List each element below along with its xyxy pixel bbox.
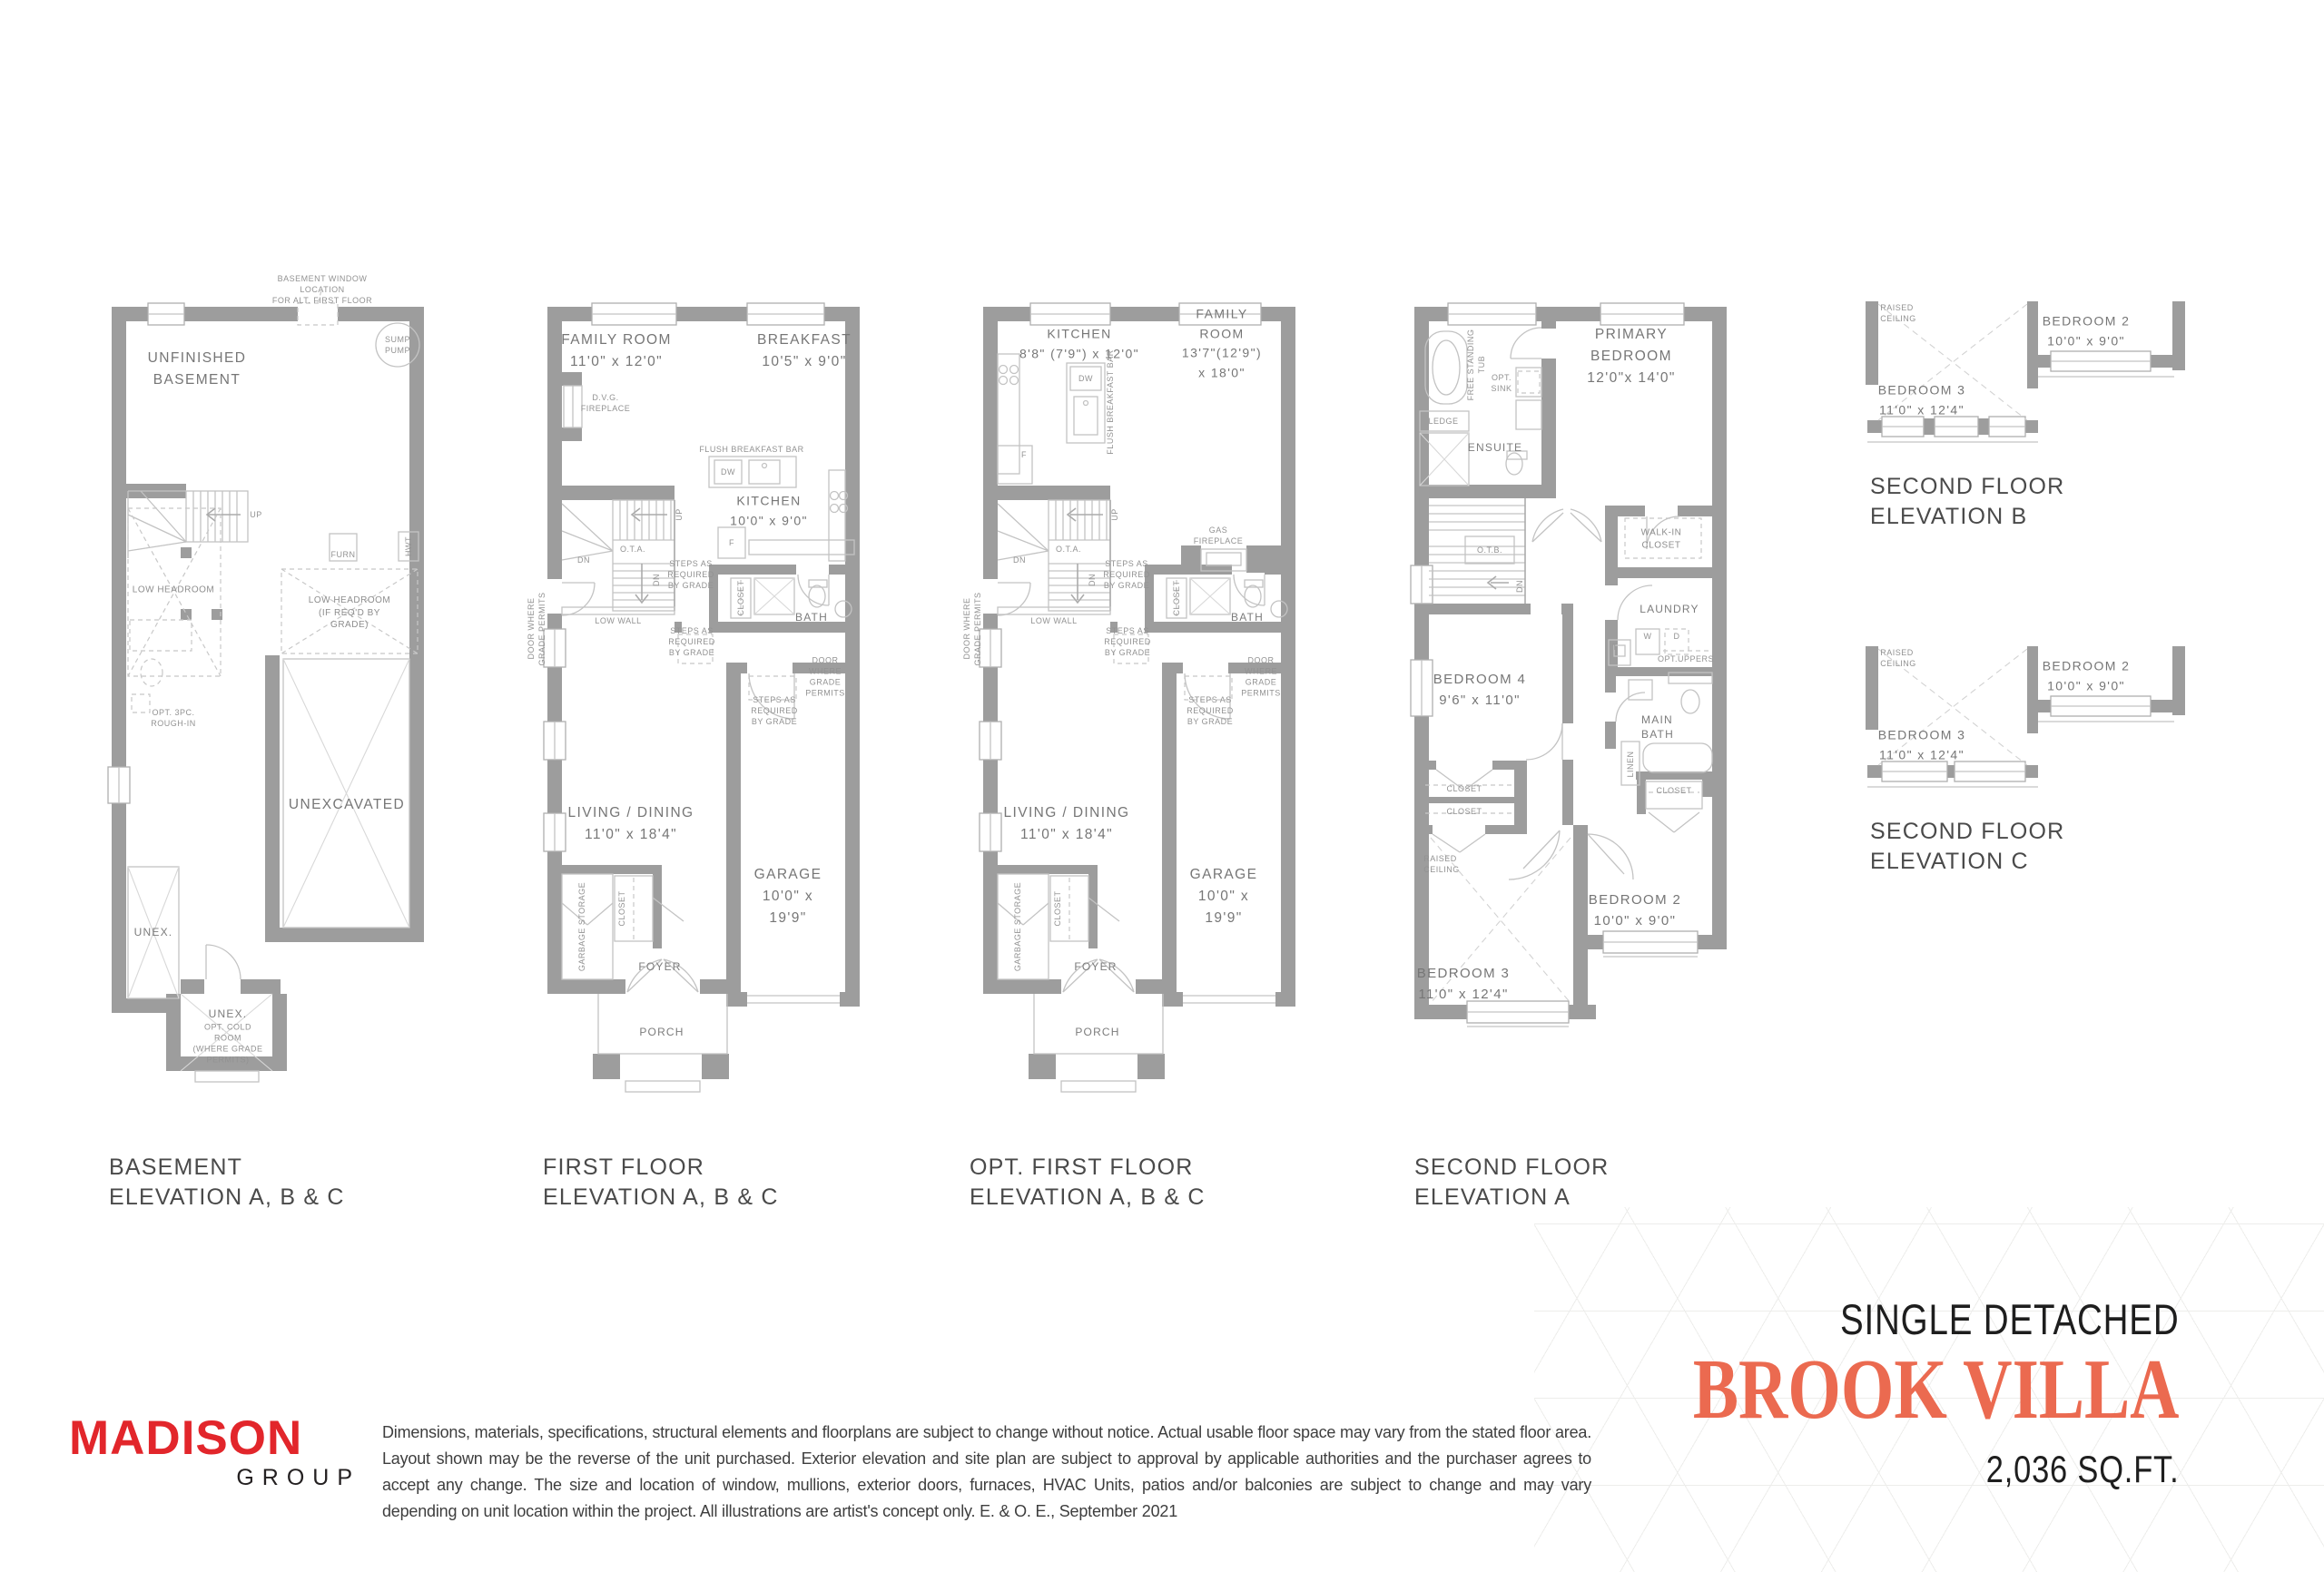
label-opt-steps-3: STEPS AS REQUIRED BY GRADE [1187,694,1234,727]
label-living-dining: LIVING / DINING 11'0" x 18'4" [568,802,694,846]
label-cold-room: OPT. COLD ROOM (WHERE GRADE PERMITS) [192,1022,262,1066]
label-dvg-fireplace: D.V.G. FIREPLACE [581,392,631,414]
label-family-room: FAMILY ROOM 11'0" x 12'0" [561,329,672,373]
label-unexcavated: UNEXCAVATED [289,794,405,816]
label-up: UP [250,509,262,520]
label-opt-closet-foyer: CLOSET [1052,890,1063,926]
label-bath: BATH [795,610,828,624]
model-area: 2,036 SQ.FT. [1680,1449,2179,1490]
label-door-grade-left: DOOR WHERE GRADE PERMITS [526,592,547,665]
label-garage: GARAGE 10'0" x 19'9" [746,864,830,929]
label-closet-bath: CLOSET [735,580,746,615]
label-bedroom-2-b: BEDROOM 2 10'0" x 9'0" [2043,311,2131,350]
label-opt-up-vertical: UP [1109,508,1120,521]
product-type-label: SINGLE DETACHED [1680,1296,2179,1343]
second-floor-a-plan: PRIMARY BEDROOM 12'0"x 14'0" FREE STANDI… [1407,277,1738,1044]
label-bedroom-3-b: BEDROOM 3 11'0" x 12'4" [1878,380,1966,419]
label-opt-steps-2: STEPS AS REQUIRED BY GRADE [1104,625,1151,658]
model-title-block: SINGLE DETACHED BROOK VILLA 2,036 SQ.FT. [1571,1296,2179,1490]
label-steps-grade-3: STEPS AS REQUIRED BY GRADE [751,694,798,727]
label-gas-fireplace: GAS FIREPLACE [1194,525,1244,546]
madison-group-logo: MADISON GROUP [69,1414,352,1489]
label-second-dn: DN [1514,580,1525,593]
logo-group-text: GROUP [69,1467,360,1489]
label-opt-door-grade-right: DOOR WHERE GRADE PERMITS [1238,655,1285,700]
second-floor-b-title: SECOND FLOOR ELEVATION B [1870,472,2064,532]
label-dn: DN [577,555,590,565]
label-opt-uppers: OPT.UPPERS [1658,653,1714,664]
basement-walls [112,307,424,1071]
label-opt-sink: OPT. SINK [1491,372,1512,394]
label-opt-dn-vertical: DN [1087,574,1098,586]
label-ota: O.T.A. [620,544,645,555]
label-opt-fridge: F [1021,449,1027,460]
label-raised-ceiling-a: RAISED CEILING [1423,853,1460,875]
label-closet-bed2: CLOSET [1656,785,1691,796]
legal-disclaimer: Dimensions, materials, specifications, s… [382,1420,1591,1525]
label-bedroom-3-c: BEDROOM 3 11'0" x 12'4" [1878,725,1966,764]
label-opt-porch: PORCH [1075,1025,1119,1039]
label-dw: DW [721,467,735,477]
label-laundry: LAUNDRY [1640,602,1699,616]
label-linen: LINEN [1625,751,1636,777]
label-low-headroom: LOW HEADROOM [133,584,214,596]
basement-plan: BASEMENT WINDOW LOCATION FOR ALT. FIRST … [104,277,436,1107]
label-unex-2: UNEX. [209,1007,248,1021]
second-floor-c-title: SECOND FLOOR ELEVATION C [1870,817,2064,877]
label-porch: PORCH [639,1025,684,1039]
label-bedroom-2-c: BEDROOM 2 10'0" x 9'0" [2043,656,2131,695]
label-opt-garbage-storage: GARBAGE STORAGE [1012,882,1023,971]
basement-window-note: BASEMENT WINDOW LOCATION FOR ALT. FIRST … [266,273,379,306]
label-furnace: FURN [331,549,356,560]
label-opt-door-grade-left: DOOR WHERE GRADE PERMITS [961,592,983,665]
label-opt-ota: O.T.A. [1056,544,1081,555]
label-bedroom-4: BEDROOM 4 9'6" x 11'0" [1433,669,1527,712]
label-closet-1: CLOSET [1446,783,1482,794]
label-opt-closet-bath: CLOSET [1171,580,1182,615]
label-opt-foyer: FOYER [1074,959,1117,974]
label-garbage-storage: GARBAGE STORAGE [576,882,587,971]
label-main-bath: MAIN BATH [1641,712,1674,742]
label-ensuite: ENSUITE [1468,440,1522,455]
opt-first-floor-title: OPT. FIRST FLOOR ELEVATION A, B & C [970,1153,1206,1213]
label-foyer: FOYER [638,959,681,974]
opt-first-floor-plan: KITCHEN 8'8" (7'9") x 12'0" FAMILY ROOM … [976,277,1307,1107]
label-low-wall: LOW WALL [595,615,641,626]
label-closet-2: CLOSET [1446,806,1482,817]
label-low-headroom-grade: LOW HEADROOM (IF REQ'D BY GRADE) [307,594,393,632]
label-sump-pump: SUMP PUMP [385,334,410,356]
label-opt-family-room: FAMILY ROOM 13'7"(12'9") x 18'0" [1179,305,1265,384]
label-door-grade-right: DOOR WHERE GRADE PERMITS [803,655,849,700]
second-floor-a-title: SECOND FLOOR ELEVATION A [1414,1153,1609,1213]
label-steps-grade-1: STEPS AS REQUIRED BY GRADE [667,558,714,591]
logo-madison-text: MADISON [69,1414,352,1462]
label-free-standing-tub: FREE STANDING TUB [1465,329,1487,401]
basement-floorplan-drawing [104,277,436,1107]
floorplan-brochure-page: { "brand": {"name": "MADISON", "division… [0,0,2324,1572]
label-opt-kitchen: KITCHEN 8'8" (7'9") x 12'0" [1019,324,1139,363]
label-dryer: D [1674,631,1680,642]
label-bedroom-2-a: BEDROOM 2 10'0" x 9'0" [1589,889,1682,932]
label-raised-ceiling-c: RAISED CEILING [1880,647,1916,669]
label-dn-vertical: DN [651,574,662,586]
label-hwt: HWT [403,536,414,556]
label-opt-garage: GARAGE 10'0" x 19'9" [1182,864,1265,929]
label-tub-laundry: T [1612,642,1618,653]
label-opt-dw: DW [1078,373,1093,384]
label-opt-low-wall: LOW WALL [1030,615,1077,626]
label-otb: O.T.B. [1477,545,1502,555]
label-washer: W [1644,631,1652,642]
first-floor-plan: FAMILY ROOM 11'0" x 12'0" BREAKFAST 10'5… [540,277,871,1107]
label-fridge: F [729,537,734,548]
label-opt-bath: BATH [1231,610,1264,624]
label-kitchen: KITCHEN 10'0" x 9'0" [730,491,808,530]
basement-plan-title: BASEMENT ELEVATION A, B & C [109,1153,345,1213]
label-steps-grade-2: STEPS AS REQUIRED BY GRADE [668,625,715,658]
label-bedroom-3-a: BEDROOM 3 11'0" x 12'4" [1417,963,1511,1006]
label-rough-in: OPT. 3PC. ROUGH-IN [151,707,196,729]
label-ledge: LEDGE [1428,416,1458,427]
label-opt-living-dining: LIVING / DINING 11'0" x 18'4" [1004,802,1130,846]
label-unex-1: UNEX. [134,925,173,939]
label-walk-in-closet: WALK-IN CLOSET [1641,527,1682,552]
label-opt-steps-1: STEPS AS REQUIRED BY GRADE [1103,558,1150,591]
label-raised-ceiling-b: RAISED CEILING [1880,302,1916,324]
first-floor-title: FIRST FLOOR ELEVATION A, B & C [543,1153,779,1213]
label-opt-flush-bar: FLUSH BREAKFAST BAR [1105,349,1116,454]
label-closet-foyer: CLOSET [616,890,627,926]
label-unfinished-basement: UNFINISHED BASEMENT [148,348,247,391]
label-breakfast: BREAKFAST 10'5" x 9'0" [757,329,852,373]
model-name: BROOK VILLA [1692,1347,2179,1434]
label-up-vertical: UP [674,508,684,521]
label-primary-bedroom: PRIMARY BEDROOM 12'0"x 14'0" [1578,324,1685,389]
label-opt-dn: DN [1013,555,1026,565]
label-flush-breakfast-bar: FLUSH BREAKFAST BAR [699,444,803,455]
